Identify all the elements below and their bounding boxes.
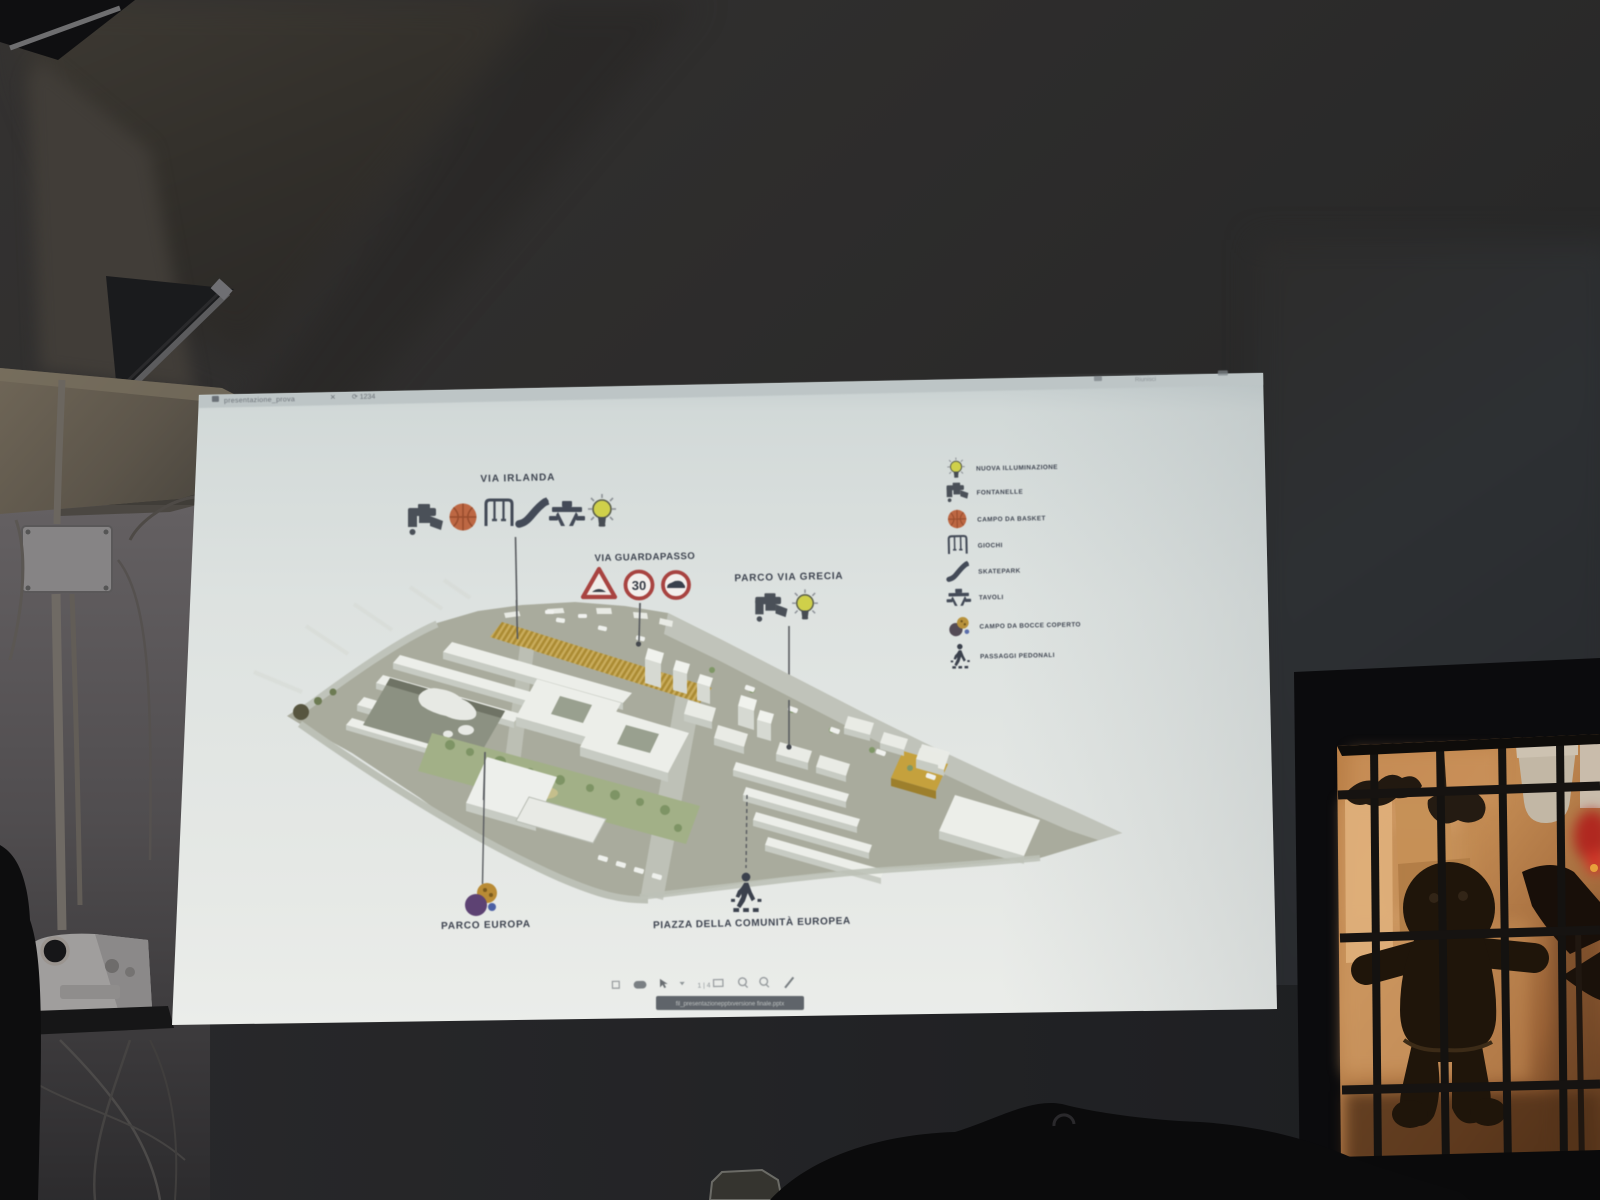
svg-text:VIA IRLANDA: VIA IRLANDA xyxy=(480,472,555,485)
svg-text:presentazione_prova: presentazione_prova xyxy=(224,396,295,404)
svg-text:TAVOLI: TAVOLI xyxy=(979,594,1004,602)
svg-text:GIOCHI: GIOCHI xyxy=(978,542,1003,550)
svg-text:1 | 4: 1 | 4 xyxy=(697,982,710,989)
svg-text:⟳ 1234: ⟳ 1234 xyxy=(352,394,376,401)
svg-text:fil_presentazionepptxversione: fil_presentazionepptxversione finale.ppt… xyxy=(676,1002,784,1008)
svg-text:30: 30 xyxy=(632,578,646,593)
svg-text:PARCO EUROPA: PARCO EUROPA xyxy=(441,919,531,932)
svg-text:Riunisci: Riunisci xyxy=(1135,377,1156,383)
svg-text:FONTANELLE: FONTANELLE xyxy=(977,489,1024,497)
svg-text:CAMPO DA BASKET: CAMPO DA BASKET xyxy=(977,515,1046,523)
svg-text:VIA GUARDAPASSO: VIA GUARDAPASSO xyxy=(594,551,695,564)
svg-text:SKATEPARK: SKATEPARK xyxy=(978,568,1021,576)
svg-text:✕: ✕ xyxy=(330,394,336,401)
